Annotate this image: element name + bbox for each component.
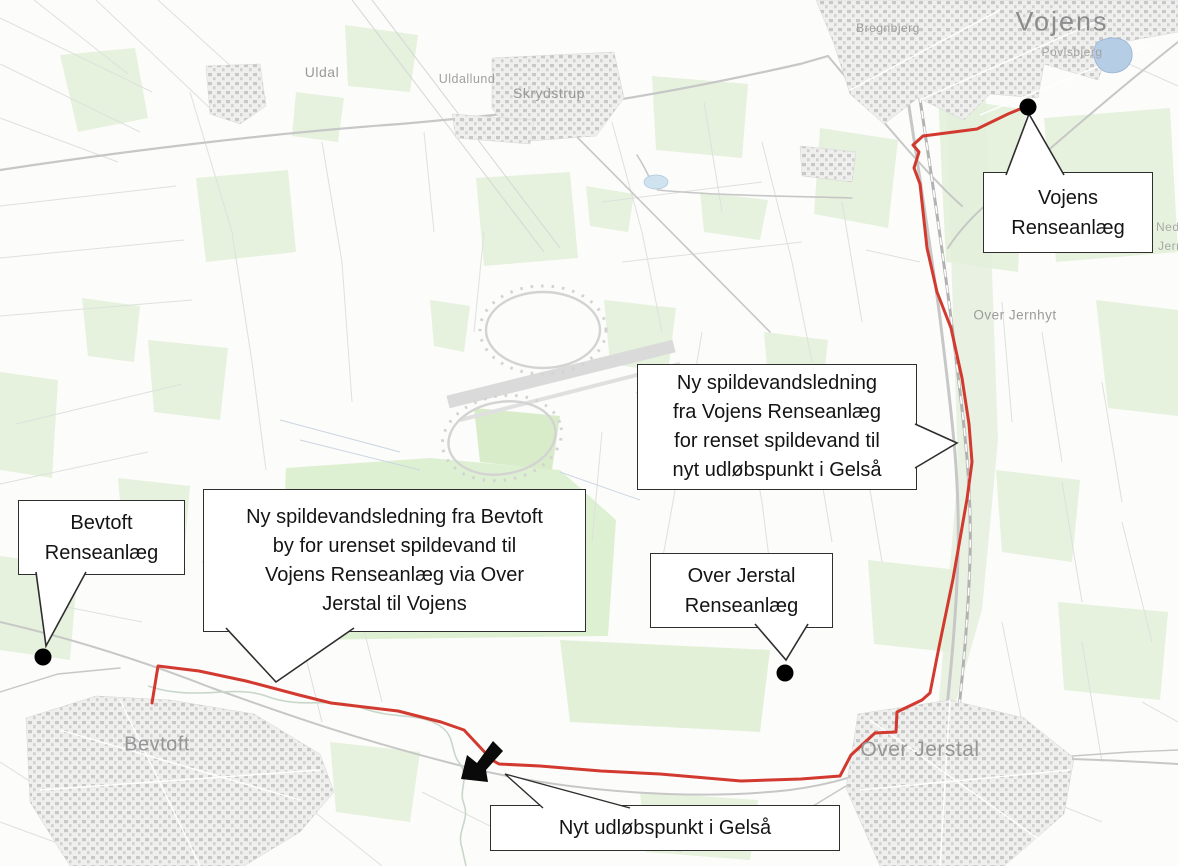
callout-line: fra Vojens Renseanlæg (673, 398, 881, 427)
callout-line: nyt udløbspunkt i Gelså (673, 456, 882, 485)
map-label-bregnbjerg: Bregnbjerg (856, 21, 920, 35)
map-figure: Vojens Povlsbjerg Bregnbjerg Uldal Uldal… (0, 0, 1178, 866)
callout-bevtoft-renseanlaeg: Bevtoft Renseanlæg (18, 500, 185, 575)
callout-bevtoft-pipeline: Ny spildevandsledning fra Bevtoft by for… (203, 489, 586, 632)
map-label-over-jerstal-town: Over Jerstal (860, 738, 979, 762)
callout-line: Renseanlæg (685, 591, 798, 621)
callout-line: Ny spildevandsledning fra Bevtoft (246, 503, 543, 532)
callout-line: Vojens Renseanlæg via Over (265, 561, 524, 590)
map-label-uldal: Uldal (305, 64, 339, 80)
callout-line: Ny spildevandsledning (677, 369, 877, 398)
callout-line: Over Jerstal (688, 561, 796, 591)
map-label-vojens: Vojens (1015, 7, 1108, 38)
callout-line: Jerstal til Vojens (322, 590, 467, 619)
callout-line: Vojens (1038, 183, 1098, 213)
callout-line: Bevtoft (70, 508, 132, 538)
map-label-edge-partial-2: Jernh (1158, 239, 1178, 253)
callout-line: Renseanlæg (1011, 213, 1124, 243)
map-label-over-jernhyt: Over Jernhyt (973, 308, 1056, 323)
callout-line: Nyt udløbspunkt i Gelså (559, 814, 771, 843)
map-label-povlsbjerg: Povlsbjerg (1041, 45, 1102, 59)
map-label-bevtoft-town: Bevtoft (124, 734, 190, 757)
map-label-uldallund: Uldallund (439, 72, 496, 86)
callout-vojens-renseanlaeg: Vojens Renseanlæg (983, 172, 1153, 253)
callout-nyt-udloebspunkt: Nyt udløbspunkt i Gelså (490, 805, 840, 851)
callout-line: for renset spildevand til (674, 427, 880, 456)
map-label-edge-partial-1: Nede (1156, 220, 1178, 234)
map-label-skrydstrup: Skrydstrup (513, 85, 585, 101)
callout-over-jerstal-renseanlaeg: Over Jerstal Renseanlæg (650, 553, 833, 628)
callout-line: by for urenset spildevand til (273, 532, 516, 561)
pond (644, 175, 668, 189)
callout-vojens-outfall-pipeline: Ny spildevandsledning fra Vojens Rensean… (637, 364, 917, 490)
callout-line: Renseanlæg (45, 538, 158, 568)
